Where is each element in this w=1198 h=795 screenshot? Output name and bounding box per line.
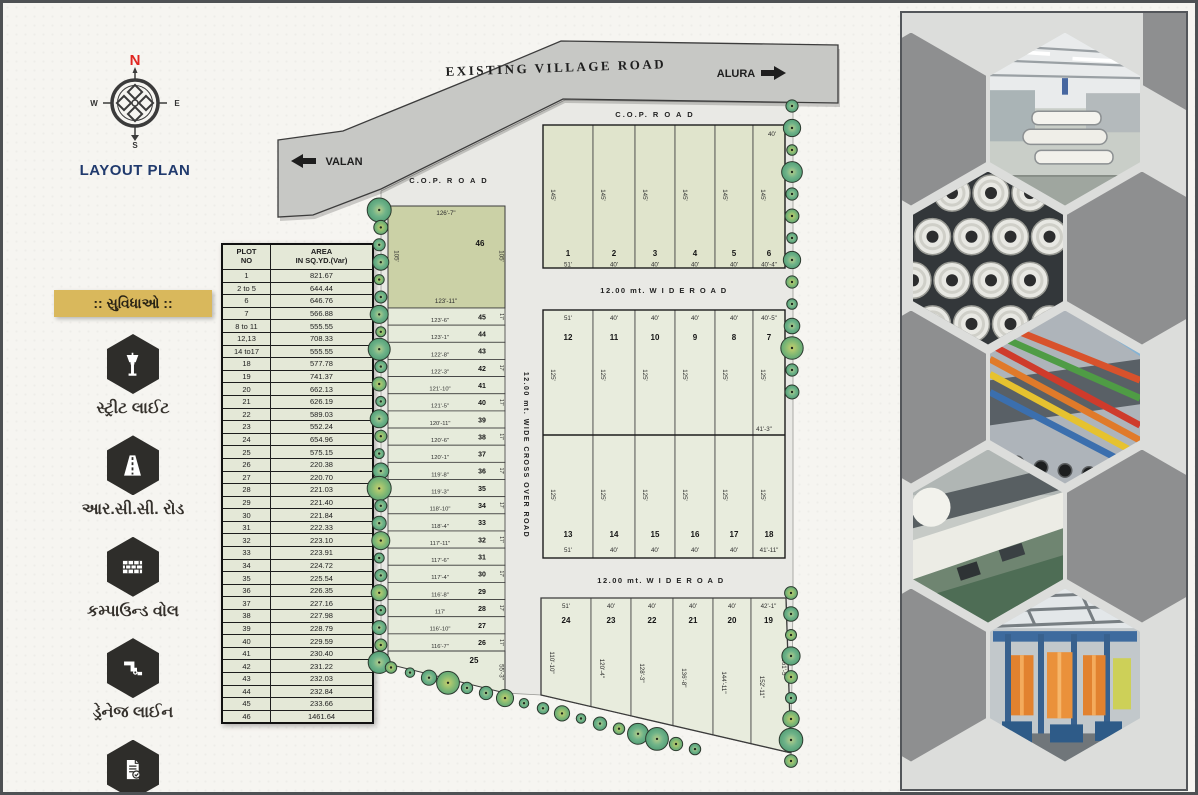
plot-16 (675, 435, 715, 558)
tree-center (378, 383, 380, 385)
dimension-label: 125' (681, 489, 688, 501)
plot-number: 16 (691, 530, 700, 539)
plot-number: 23 (607, 616, 616, 625)
tree-center (380, 470, 382, 472)
dimension-label: 17' (498, 536, 504, 543)
plot-number: 27 (478, 623, 486, 630)
plot-number: 34 (478, 503, 486, 510)
plot-5 (715, 125, 753, 268)
plot-no-cell: 20 (222, 383, 271, 396)
dimension-label: 40' (651, 315, 659, 322)
tree-center (791, 171, 793, 173)
na-plan-document-icon (107, 740, 159, 795)
tree-center (378, 348, 380, 350)
plot-no-cell: 27 (222, 471, 271, 484)
tree-center (380, 331, 382, 333)
dimension-label: 123'-6" (431, 318, 449, 324)
dimension-label: 17' (498, 605, 504, 612)
plot-number: 25 (470, 656, 479, 665)
tree-center (791, 259, 793, 261)
dimension-label: 40' (691, 547, 699, 554)
dimension-label: 118'-4" (431, 524, 449, 530)
photo-hex-weaving-loom (913, 450, 1063, 623)
tree-center (447, 682, 449, 684)
dimension-label: 120'-6" (431, 438, 449, 444)
dimension-label: 110'-10" (548, 651, 555, 673)
dimension-label: 40' (610, 547, 618, 554)
tree-center (637, 733, 639, 735)
plot-9 (675, 310, 715, 435)
compass-rose-icon: N W E S (83, 51, 187, 151)
compass-south-label: S (132, 141, 138, 150)
tree-center (561, 712, 563, 714)
amenities-list: સ્ટ્રીટ લાઈટઆર.સી.સી. રોડકમ્પાઉન્ડ વોલડ્… (62, 317, 203, 795)
plot-number: 3 (653, 249, 658, 258)
plot-number: 15 (651, 530, 660, 539)
dimension-label: 17' (498, 571, 504, 578)
plot-3 (635, 125, 675, 268)
plot-number: 38 (478, 434, 486, 441)
plot-number: 12 (564, 333, 573, 342)
tree-center (380, 365, 382, 367)
tree-center (378, 244, 380, 246)
plot-no-cell: 14 to17 (222, 345, 271, 358)
plot-no-cell: 1 (222, 270, 271, 283)
tree-center (790, 613, 792, 615)
plot-number: 5 (732, 249, 737, 258)
plot-number: 32 (478, 537, 486, 544)
tree-center (790, 718, 792, 720)
dimension-label: 152'-11" (758, 676, 765, 698)
plot-no-cell: 7 (222, 307, 271, 320)
tree-center (791, 149, 793, 151)
plot-no-cell: 40 (222, 635, 271, 648)
alura-label: ALURA (717, 68, 756, 80)
plot-number: 31 (478, 554, 486, 561)
dimension-label: 123'-11" (435, 298, 457, 305)
amenities-sidebar: :: સુવિધાઓ :: સ્ટ્રીટ લાઈટઆર.સી.સી. રોડક… (31, 290, 235, 795)
rcc-road-icon (107, 435, 159, 495)
tree-center (791, 215, 793, 217)
dimension-label: 40'-5" (761, 315, 777, 322)
tree-center (790, 697, 792, 699)
plot-number: 44 (478, 332, 486, 339)
dimension-label: 122'-3" (431, 369, 449, 375)
tree-center (380, 505, 382, 507)
dimension-label: 40' (610, 315, 618, 322)
plot-number: 39 (478, 417, 486, 424)
tree-center (791, 369, 793, 371)
dimension-label: 117' (435, 610, 445, 616)
plot-no-cell: 21 (222, 395, 271, 408)
plot-no-cell: 31 (222, 521, 271, 534)
dimension-label: 116'-10" (430, 627, 451, 633)
plot-no-cell: 2 to 5 (222, 282, 271, 295)
plot-46 (388, 206, 505, 308)
plot-number: 36 (478, 469, 486, 476)
dimension-label: 51' (564, 315, 572, 322)
dimension-label: 116'-7" (431, 644, 449, 650)
tree-center (378, 522, 380, 524)
tree-center (380, 400, 382, 402)
tree-center (694, 748, 696, 750)
compass-north-label: N (130, 52, 141, 69)
dimension-label: 125' (549, 369, 556, 381)
plot-no-cell: 35 (222, 572, 271, 585)
dimension-label: 40' (691, 315, 699, 322)
plot-no-cell: 25 (222, 446, 271, 459)
tree-center (791, 347, 793, 349)
amenity-label: કમ્પાઉન્ડ વોલ (87, 603, 179, 621)
plot-number: 2 (612, 249, 617, 258)
plot-number: 18 (765, 530, 774, 539)
plot-number: 30 (478, 572, 486, 579)
dimension-label: 117'-4" (431, 575, 449, 581)
plot-number: 33 (478, 520, 486, 527)
dimension-label: 105' (498, 250, 505, 262)
tree-center (378, 209, 380, 211)
tree-center (618, 728, 620, 730)
tree-center (409, 671, 411, 673)
dimension-label: 125' (759, 369, 766, 381)
tree-center (380, 296, 382, 298)
photo-hex-textile-factory-interior (990, 33, 1140, 206)
grey-hexagon (900, 311, 986, 484)
plot-no-cell: 28 (222, 484, 271, 497)
cop-road-top-label: C.O.P. R O A D (615, 110, 694, 119)
tree-center (790, 592, 792, 594)
tree-center (428, 677, 430, 679)
plot-no-cell: 6 (222, 295, 271, 308)
amenity-item: સ્ટ્રીટ લાઈટ (62, 334, 203, 418)
plot-number: 46 (476, 239, 485, 248)
dimension-label: 105' (393, 250, 400, 262)
dimension-label: 125' (641, 489, 648, 501)
plot-number: 10 (651, 333, 660, 342)
plot-number: 22 (648, 616, 657, 625)
dimension-label: 125' (759, 489, 766, 501)
tree-center (378, 278, 380, 280)
plot-4 (675, 125, 715, 268)
tree-center (466, 687, 468, 689)
dimension-label: 118'-10" (430, 507, 451, 513)
dimension-label: 145' (549, 189, 556, 201)
dimension-label: 55'-3" (498, 664, 505, 680)
dimension-label: 51' (564, 547, 572, 554)
dimension-label: 40' (768, 131, 776, 138)
plot-no-cell: 43 (222, 673, 271, 686)
dimension-label: 121'-5" (431, 404, 449, 410)
plot-no-cell: 45 (222, 698, 271, 711)
layout-plan-poster: N W E S (0, 0, 1198, 795)
tree-center (485, 692, 487, 694)
dimension-label: 125' (641, 369, 648, 381)
tree-center (378, 418, 380, 420)
plot-no-cell: 37 (222, 597, 271, 610)
dimension-label: 119'-8" (431, 472, 449, 478)
dimension-label: 123'-1" (431, 335, 449, 341)
plot-number: 19 (764, 616, 773, 625)
grey-hexagon (900, 33, 986, 206)
plot-17 (715, 435, 753, 558)
dimension-label: 41'-3" (756, 426, 772, 433)
layout-map: EXISTING VILLAGE ROAD ALURA VALAN C.O.P.… (273, 28, 873, 788)
plot-number: 43 (478, 349, 486, 356)
compass-east-label: E (174, 99, 180, 108)
plot-18 (753, 435, 785, 558)
plot-8 (715, 310, 753, 435)
dimension-label: 125' (599, 369, 606, 381)
plot-number: 20 (728, 616, 737, 625)
tree-center (378, 487, 380, 489)
plot-number: 42 (478, 366, 486, 373)
plot-number: 21 (689, 616, 698, 625)
amenity-label: સ્ટ્રીટ લાઈટ (96, 400, 169, 418)
dimension-label: 120'-1" (431, 455, 449, 461)
dimension-label: 40' (607, 603, 615, 610)
tree-center (790, 655, 792, 657)
plot-number: 29 (478, 589, 486, 596)
dimension-label: 125' (721, 489, 728, 501)
plot-7 (753, 310, 785, 435)
cross-over-road-label: 12.00 mt. WIDE CROSS OVER ROAD (522, 372, 529, 538)
tree-center (380, 539, 382, 541)
plot-number: 45 (478, 314, 486, 321)
dimension-label: 17' (498, 399, 504, 406)
amenity-item: એન.એ.પ્લાન પાસતમામ ટાઈટલ ક્લીયર (62, 740, 203, 795)
dimension-label: 17' (498, 639, 504, 646)
plot-number: 13 (564, 530, 573, 539)
plot-no-cell: 44 (222, 685, 271, 698)
amenity-label: આર.સી.સી. રોડ (82, 501, 185, 519)
tree-center (380, 609, 382, 611)
grey-hexagon (1143, 11, 1188, 129)
plot-number: 35 (478, 486, 486, 493)
dimension-label: 40' (730, 315, 738, 322)
plot-no-cell: 38 (222, 610, 271, 623)
wide-road-bottom-label: 12.00 mt. W I D E R O A D (597, 576, 724, 585)
amenity-item: કમ્પાઉન્ડ વોલ (62, 537, 203, 621)
tree-center (380, 435, 382, 437)
dimension-label: 17' (498, 468, 504, 475)
plot-10 (635, 310, 675, 435)
tree-center (790, 760, 792, 762)
dimension-label: 125' (681, 369, 688, 381)
dimension-label: 145' (599, 189, 606, 201)
dimension-label: 117'-11" (430, 541, 450, 547)
wide-road-top-label: 12.00 mt. W I D E R O A D (600, 286, 727, 295)
plot-no-cell: 29 (222, 496, 271, 509)
dimension-label: 145' (721, 189, 728, 201)
plot-number: 4 (693, 249, 698, 258)
dimension-label: 116'-8" (431, 592, 449, 598)
amenity-item: આર.સી.સી. રોડ (62, 435, 203, 519)
compass-block: N W E S (65, 51, 205, 179)
dimension-label: 120'-11" (430, 421, 451, 427)
tree-center (656, 738, 658, 740)
dimension-label: 125' (599, 489, 606, 501)
plot-number: 40 (478, 400, 486, 407)
photo-hex-yarn-spool-racks (913, 172, 1063, 345)
tree-center (380, 261, 382, 263)
dimension-label: 40' (730, 547, 738, 554)
photo-panel (900, 11, 1188, 791)
amenity-label: ડ્રેનેજ લાઈન (93, 704, 174, 722)
dimension-label: 42'-1" (761, 603, 777, 610)
tree-center (790, 676, 792, 678)
dimension-label: 40' (689, 603, 697, 610)
dimension-label: 40' (648, 603, 656, 610)
dimension-label: 51' (562, 603, 570, 610)
tree-center (791, 391, 793, 393)
tree-center (390, 666, 392, 668)
tree-center (378, 557, 380, 559)
dimension-label: 122'-8" (431, 352, 449, 358)
dimension-label: 120'-4" (598, 659, 605, 678)
dimension-label: 119'-3" (431, 489, 449, 495)
dimension-label: 126'-7" (436, 210, 455, 217)
plot-number: 41 (478, 383, 486, 390)
photo-hex-colorful-thread-warping (990, 311, 1140, 484)
plot-number: 17 (730, 530, 739, 539)
tree-center (380, 226, 382, 228)
compass-west-label: W (90, 99, 98, 108)
grey-hexagon (1067, 450, 1188, 623)
plot-number: 7 (767, 333, 772, 342)
plot-no-cell: 41 (222, 647, 271, 660)
dimension-label: 17' (498, 502, 504, 509)
plot-28 (388, 600, 505, 617)
plot-number: 14 (610, 530, 619, 539)
amenities-banner: :: સુવિધાઓ :: (54, 290, 212, 317)
street-light-icon (107, 334, 159, 394)
dimension-label: 17' (498, 433, 504, 440)
plot-no-cell: 34 (222, 559, 271, 572)
tree-center (542, 707, 544, 709)
plot-number: 9 (693, 333, 698, 342)
plot-no-cell: 8 to 11 (222, 320, 271, 333)
plot-no-cell: 39 (222, 622, 271, 635)
plot-no-cell: 18 (222, 358, 271, 371)
tree-center (504, 697, 506, 699)
dimension-label: 136'-8" (680, 668, 687, 687)
plot-number: 37 (478, 452, 486, 459)
tree-center (791, 303, 793, 305)
tree-center (791, 237, 793, 239)
plot-6 (753, 125, 785, 268)
plot-no-cell: 42 (222, 660, 271, 673)
compound-wall-icon (107, 537, 159, 597)
dimension-label: 40' (728, 603, 736, 610)
plot-no-cell: 30 (222, 509, 271, 522)
dimension-label: 17' (498, 313, 504, 320)
grey-hexagon (900, 589, 986, 762)
tree-center (580, 717, 582, 719)
dimension-label: 41'-11" (760, 547, 779, 554)
plot-no-cell: 12,13 (222, 332, 271, 345)
dimension-label: 117'-6" (431, 558, 449, 564)
tree-center (378, 452, 380, 454)
dimension-label: 121'-10" (429, 387, 450, 393)
dimension-label: 145' (641, 189, 648, 201)
plot-no-cell: 33 (222, 547, 271, 560)
plot-no-cell: 36 (222, 584, 271, 597)
amenity-item: ડ્રેનેજ લાઈન (62, 638, 203, 722)
dimension-label: 128'-3" (638, 663, 645, 682)
plot-no-cell: 22 (222, 408, 271, 421)
dimension-label: 144'-11" (720, 671, 727, 693)
dimension-label: 125' (549, 489, 556, 501)
tree-center (791, 281, 793, 283)
drainage-line-icon (107, 638, 159, 698)
grey-hexagon (1067, 172, 1188, 345)
plot-number: 24 (562, 616, 571, 625)
dimension-label: 125' (721, 369, 728, 381)
plot-no-cell: 26 (222, 458, 271, 471)
dimension-label: 145' (681, 189, 688, 201)
tree-center (791, 325, 793, 327)
plot-no-cell: 32 (222, 534, 271, 547)
dimension-label: 17' (498, 365, 504, 372)
table-header-plot-no: PLOTNO (222, 244, 271, 270)
plot-number: 6 (767, 249, 772, 258)
tree-center (378, 661, 380, 663)
tree-center (790, 634, 792, 636)
plot-number: 11 (610, 333, 619, 342)
plot-number: 8 (732, 333, 737, 342)
valan-label: VALAN (325, 156, 362, 168)
plot-15 (635, 435, 675, 558)
plot-number: 1 (566, 249, 571, 258)
dimension-label: 40' (651, 547, 659, 554)
page-title: LAYOUT PLAN (65, 162, 205, 179)
tree-center (599, 722, 601, 724)
plot-number: 28 (478, 606, 486, 613)
tree-center (791, 105, 793, 107)
tree-center (378, 313, 380, 315)
photo-hex-fabric-dyeing-plant (990, 589, 1140, 762)
plot-number: 26 (478, 640, 486, 647)
tree-center (378, 592, 380, 594)
plot-no-cell: 19 (222, 370, 271, 383)
tree-center (791, 193, 793, 195)
plot-no-cell: 24 (222, 433, 271, 446)
tree-center (378, 626, 380, 628)
tree-center (380, 644, 382, 646)
tree-center (790, 739, 792, 741)
cop-road-left-label: C.O.P. R O A D (409, 176, 488, 185)
tree-center (523, 702, 525, 704)
dimension-label: 145' (759, 189, 766, 201)
plot-no-cell: 46 (222, 710, 271, 723)
tree-center (791, 127, 793, 129)
tree-center (380, 574, 382, 576)
tree-center (675, 743, 677, 745)
plot-no-cell: 23 (222, 421, 271, 434)
